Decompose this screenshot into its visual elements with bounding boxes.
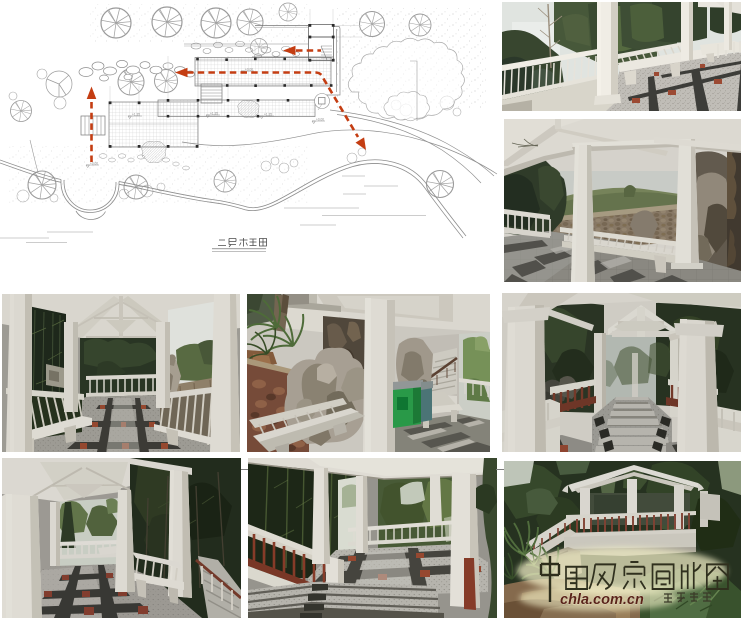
svg-text:+1.35: +1.35 (264, 112, 272, 116)
svg-text:+1.35: +1.35 (210, 111, 218, 115)
svg-text:chla.com.cn: chla.com.cn (560, 592, 644, 608)
svg-text:+0.00: +0.00 (316, 117, 324, 121)
svg-text:+1.35: +1.35 (132, 112, 140, 116)
svg-text:+0.00: +0.00 (245, 67, 253, 71)
